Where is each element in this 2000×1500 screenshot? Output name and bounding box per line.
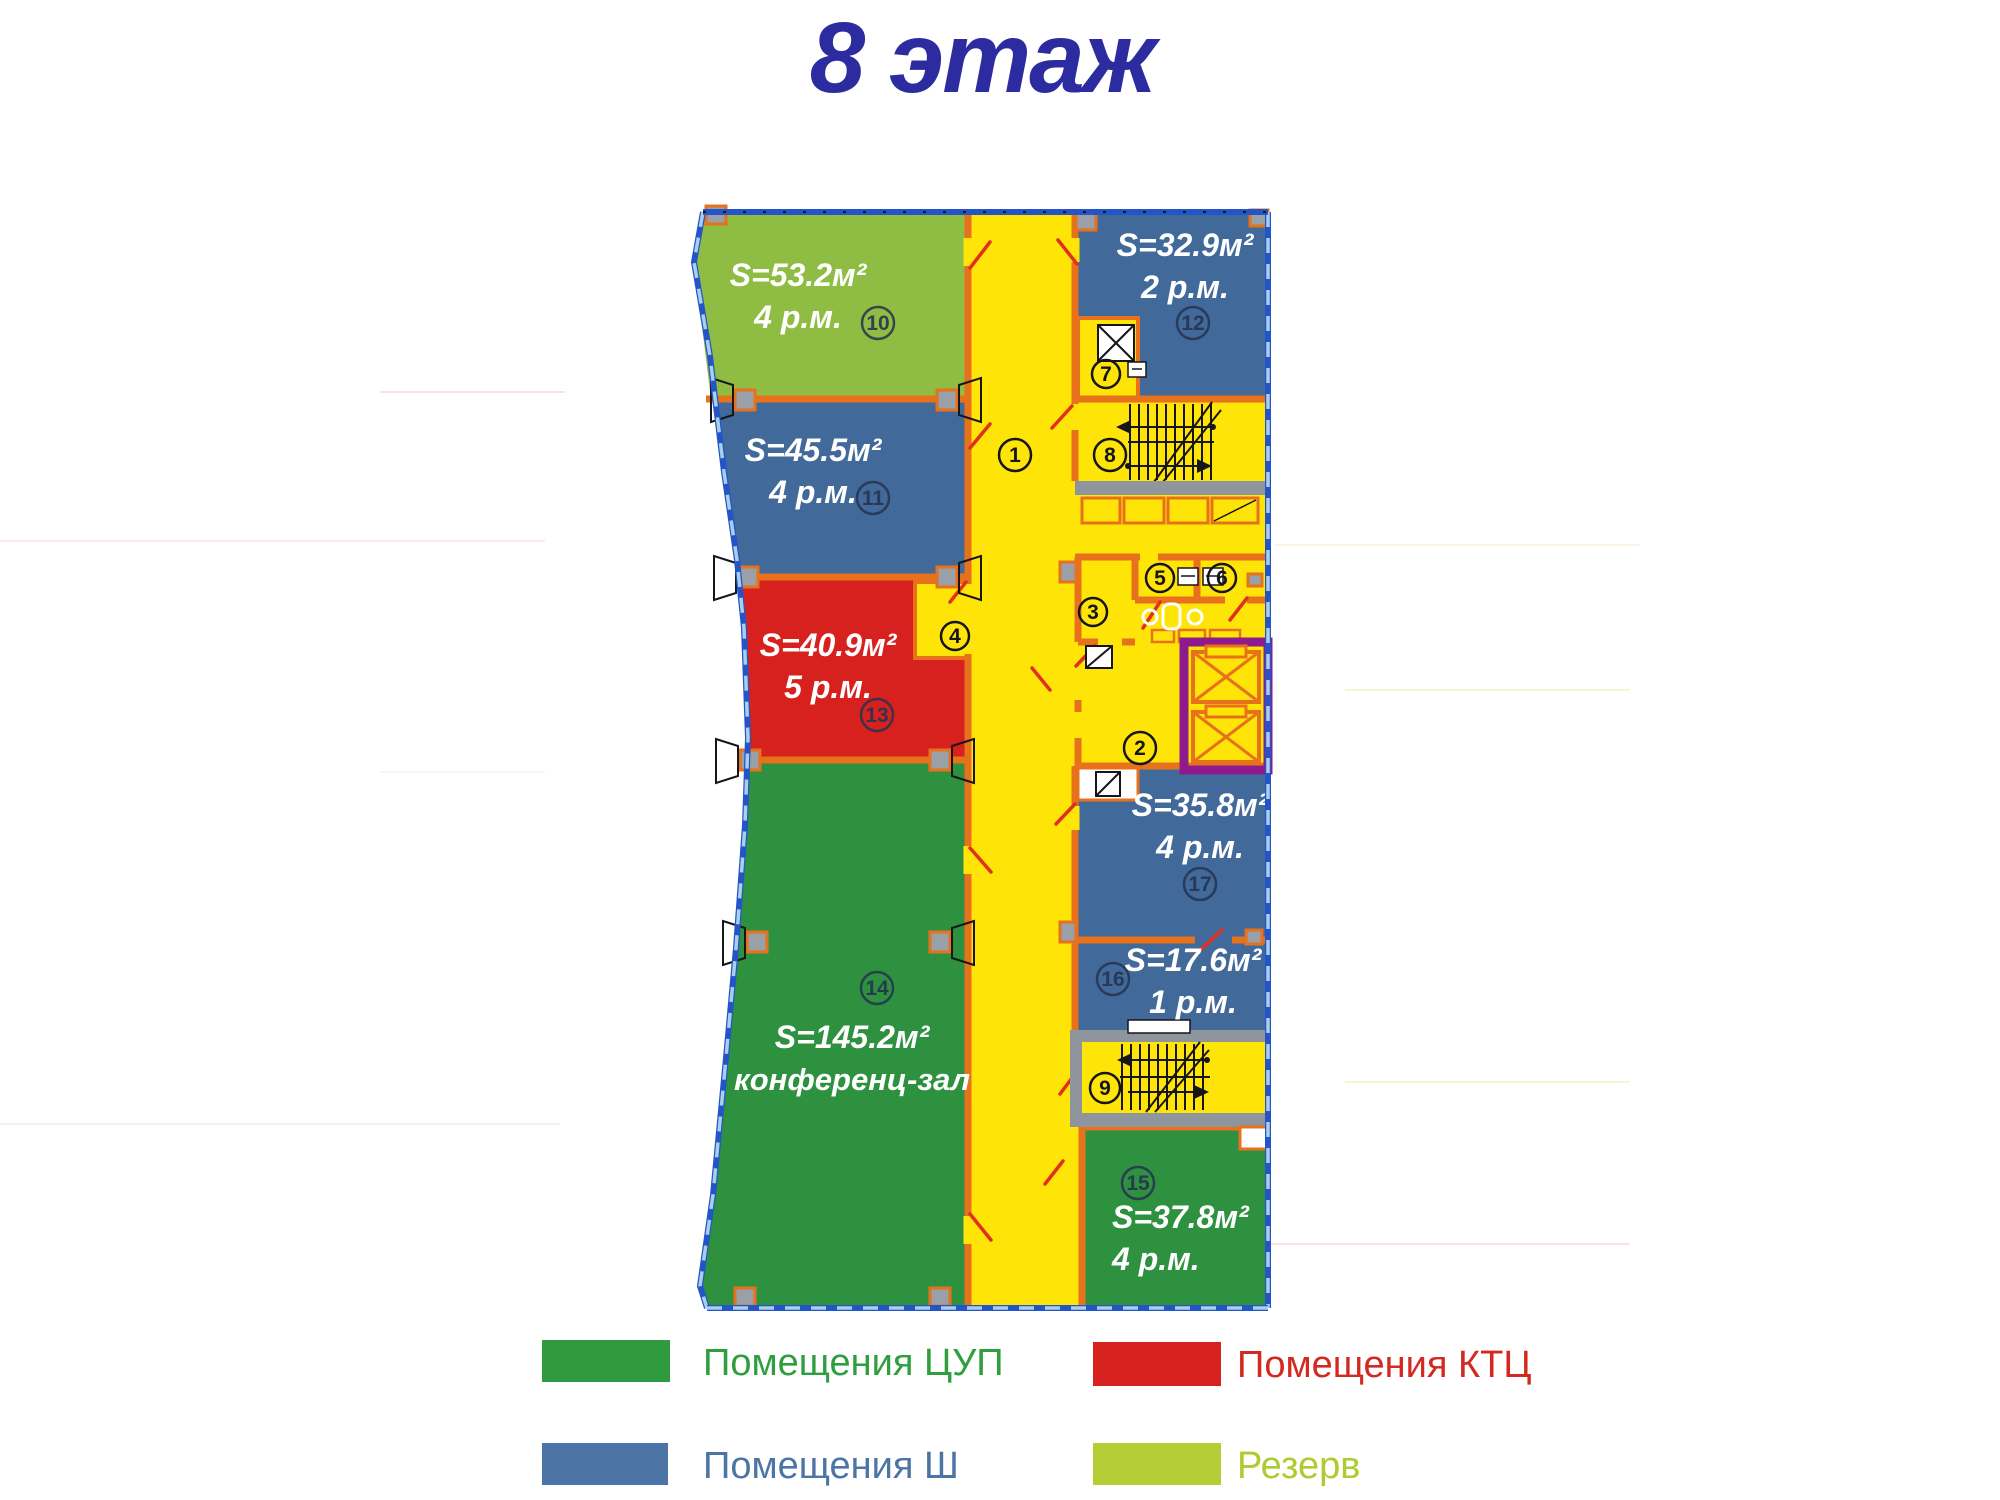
room-11-cap: 4 р.м. [768, 474, 857, 510]
svg-text:16: 16 [1101, 968, 1124, 991]
room-13-cap: 5 р.м. [784, 669, 872, 705]
room-15-cap: 4 р.м. [1111, 1241, 1200, 1277]
svg-text:6: 6 [1216, 567, 1228, 590]
badge-room-15: 15 [1122, 1167, 1154, 1199]
badge-room-10: 10 [862, 307, 894, 339]
svg-text:8: 8 [1104, 444, 1116, 467]
room-10-area: S=53.2м² [730, 257, 868, 293]
room-12-area: S=32.9м² [1117, 227, 1255, 263]
badge-room-17: 17 [1184, 868, 1216, 900]
notch-15 [1240, 1127, 1268, 1149]
floor-plan: S=53.2м² 4 р.м. S=45.5м² 4 р.м. S=40.9м²… [694, 206, 1270, 1308]
room-17-cap: 4 р.м. [1155, 829, 1244, 865]
room-17-area: S=35.8м² [1132, 787, 1270, 823]
badge-8: 8 [1094, 439, 1126, 471]
badge-room-13: 13 [861, 699, 893, 731]
legend-item-cup: Помещения ЦУП [542, 1340, 1004, 1384]
badge-7: 7 [1092, 360, 1120, 388]
badge-room-11: 11 [857, 482, 889, 514]
svg-text:1: 1 [1009, 444, 1021, 467]
svg-text:10: 10 [866, 312, 889, 335]
legend-item-sh: Помещения Ш [542, 1443, 959, 1487]
room-13-area: S=40.9м² [760, 627, 898, 663]
room-15-area: S=37.8м² [1112, 1199, 1250, 1235]
legend-item-reserve: Резерв [1093, 1443, 1360, 1487]
room-10-cap: 4 р.м. [753, 299, 842, 335]
legend-label-sh: Помещения Ш [703, 1445, 959, 1487]
svg-text:17: 17 [1188, 873, 1211, 896]
badge-6: 6 [1208, 564, 1236, 592]
room-16-area: S=17.6м² [1125, 942, 1263, 978]
locker-row [1082, 498, 1258, 523]
badge-room-16: 16 [1097, 963, 1129, 995]
svg-text:15: 15 [1126, 1172, 1150, 1195]
badge-9: 9 [1090, 1073, 1120, 1103]
legend-label-reserve: Резерв [1237, 1445, 1360, 1487]
svg-text:11: 11 [862, 487, 885, 510]
svg-text:13: 13 [865, 704, 888, 727]
svg-text:9: 9 [1099, 1077, 1111, 1100]
elevator-shaft-2 [1193, 706, 1259, 762]
legend-label-ktc: Помещения КТЦ [1237, 1344, 1531, 1386]
badge-4: 4 [941, 622, 969, 650]
svg-text:7: 7 [1100, 363, 1112, 386]
svg-text:12: 12 [1181, 312, 1204, 335]
svg-text:2: 2 [1134, 737, 1146, 760]
badge-room-14: 14 [861, 972, 893, 1004]
svg-text:14: 14 [865, 977, 889, 1000]
badge-1: 1 [999, 439, 1031, 471]
legend-swatch-reserve [1093, 1443, 1221, 1485]
legend-swatch-ktc [1093, 1342, 1221, 1386]
legend-label-cup: Помещения ЦУП [703, 1342, 1004, 1384]
room-12-cap: 2 р.м. [1140, 269, 1229, 305]
page-title: 8 этаж [810, 2, 1161, 114]
svg-text:3: 3 [1087, 601, 1099, 624]
legend-swatch-cup [542, 1340, 670, 1382]
badge-5: 5 [1146, 564, 1174, 592]
svg-text:5: 5 [1154, 567, 1166, 590]
room-11-area: S=45.5м² [745, 432, 883, 468]
stair-wall [1075, 481, 1268, 495]
badge-room-12: 12 [1177, 307, 1209, 339]
stair-door [1128, 1020, 1190, 1033]
floor-plan-page: 8 этаж [0, 0, 2000, 1500]
legend-item-ktc: Помещения КТЦ [1093, 1342, 1531, 1386]
room-16-cap: 1 р.м. [1149, 984, 1237, 1020]
badge-2: 2 [1124, 732, 1156, 764]
room-14-area: S=145.2м² [775, 1019, 931, 1055]
legend: Помещения ЦУП Помещения КТЦ Помещения Ш … [542, 1340, 1531, 1487]
badge-3: 3 [1079, 598, 1107, 626]
room-14-cap: конференц-зал [734, 1062, 970, 1097]
elevator-shaft-1 [1193, 646, 1259, 702]
svg-text:4: 4 [949, 625, 961, 648]
legend-swatch-sh [542, 1443, 668, 1485]
